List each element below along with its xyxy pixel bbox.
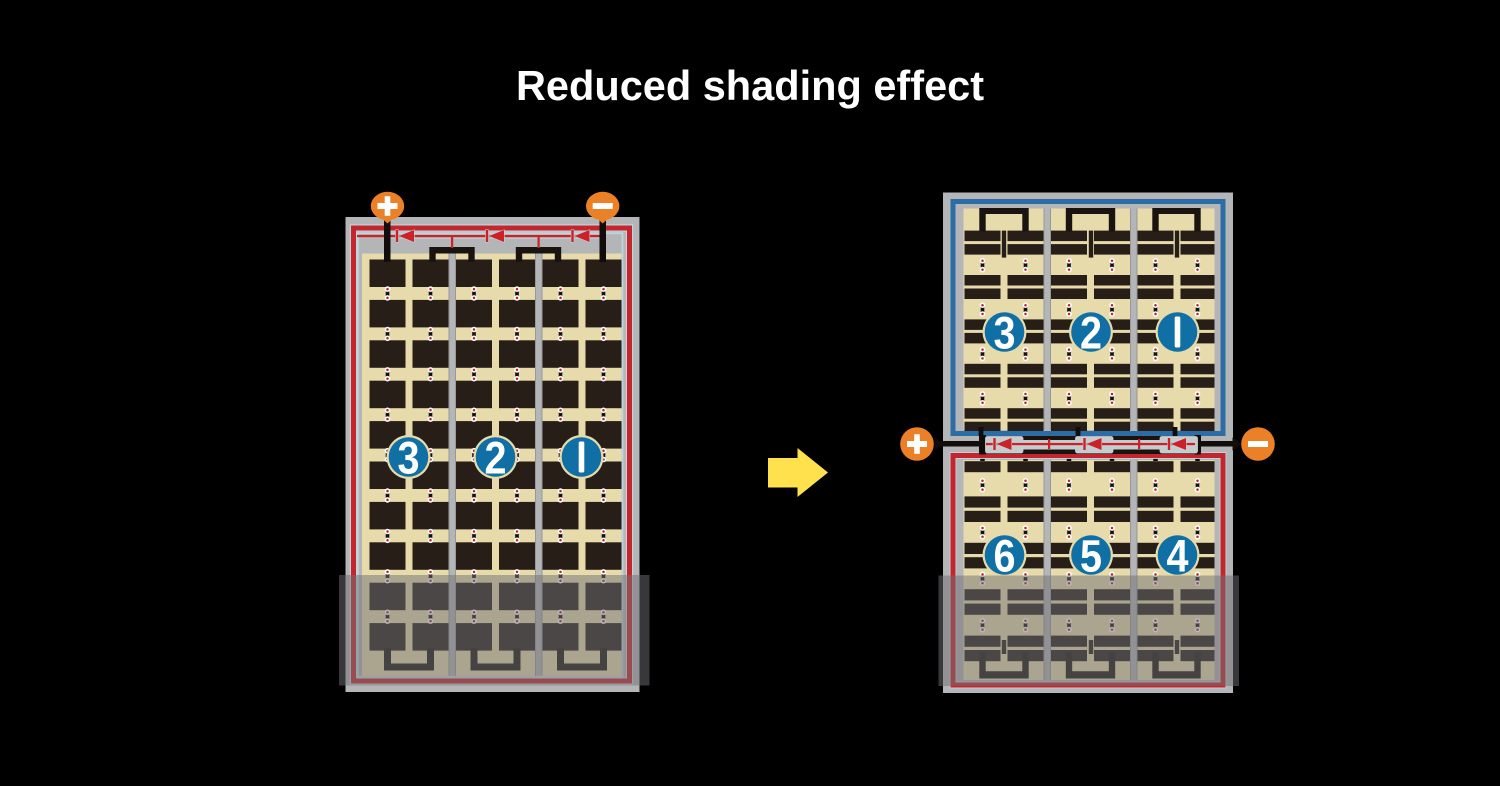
svg-text:4: 4: [1167, 530, 1190, 581]
svg-text:2: 2: [1080, 307, 1102, 358]
svg-text:2: 2: [485, 432, 507, 483]
svg-text:3: 3: [994, 307, 1016, 358]
svg-text:Reduced shading effect: Reduced shading effect: [516, 62, 984, 109]
svg-text:5: 5: [1080, 530, 1102, 581]
svg-text:3: 3: [398, 432, 420, 483]
svg-text:6: 6: [994, 530, 1016, 581]
